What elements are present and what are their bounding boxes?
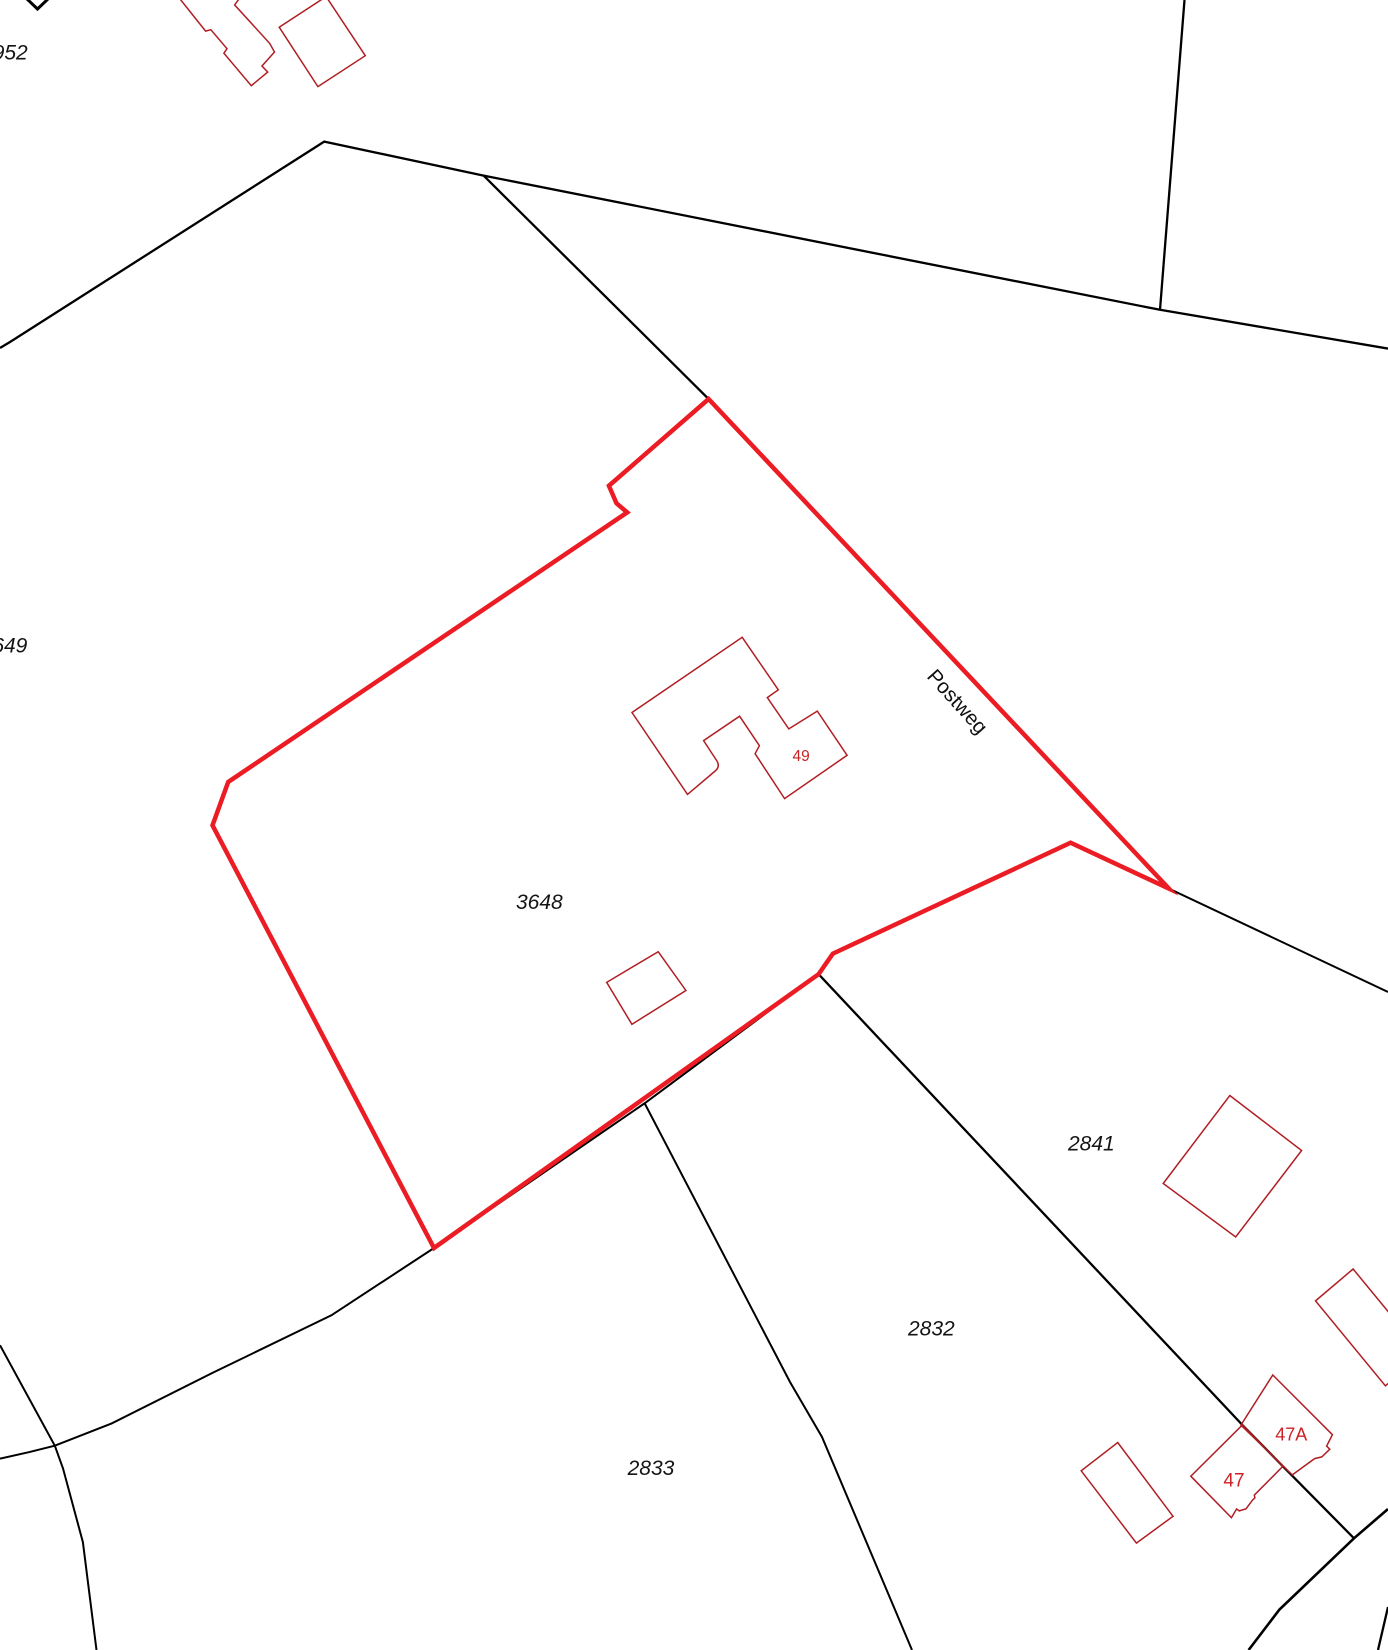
svg-text:2832: 2832 [907,1318,955,1341]
svg-text:49: 49 [793,748,810,765]
svg-text:3648: 3648 [516,891,563,914]
svg-text:2833: 2833 [627,1457,675,1480]
svg-text:47: 47 [1223,1471,1244,1492]
svg-text:47A: 47A [1275,1425,1307,1445]
svg-text:649: 649 [0,635,28,658]
svg-text:952: 952 [0,42,28,65]
svg-text:2841: 2841 [1067,1133,1115,1156]
